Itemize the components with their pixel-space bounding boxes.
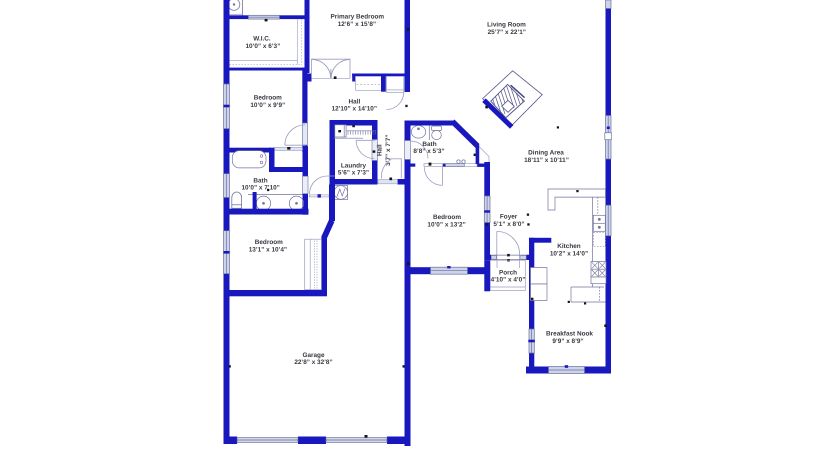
svg-text:10’0” x 9’9”: 10’0” x 9’9” — [250, 102, 285, 109]
svg-text:5’1” x 8’0”: 5’1” x 8’0” — [493, 221, 524, 228]
svg-text:Foyer: Foyer — [500, 213, 518, 220]
svg-text:12’10” x 14’10”: 12’10” x 14’10” — [332, 106, 377, 113]
svg-text:Garage: Garage — [302, 352, 324, 359]
svg-text:W.I.C.: W.I.C. — [253, 36, 271, 43]
svg-text:Hall: Hall — [349, 98, 361, 105]
svg-text:10’0” x 13’2”: 10’0” x 13’2” — [427, 222, 465, 229]
svg-text:Porch: Porch — [499, 270, 517, 277]
svg-text:Kitchen: Kitchen — [557, 243, 581, 250]
svg-text:Living Room: Living Room — [487, 22, 526, 29]
svg-text:18’11” x 10’11”: 18’11” x 10’11” — [524, 157, 569, 164]
svg-text:Bedroom: Bedroom — [255, 239, 283, 246]
svg-text:Dining Area: Dining Area — [528, 149, 564, 156]
svg-text:Bath: Bath — [253, 177, 267, 184]
svg-text:Bedroom: Bedroom — [254, 95, 282, 102]
svg-text:Bedroom: Bedroom — [433, 214, 461, 221]
svg-text:Laundry: Laundry — [341, 163, 367, 170]
svg-text:Breakfast Nook: Breakfast Nook — [546, 330, 593, 337]
svg-text:5’6” x 7’3”: 5’6” x 7’3” — [338, 170, 369, 177]
svg-text:13’1” x 10’4”: 13’1” x 10’4” — [249, 247, 287, 254]
svg-text:Hall: Hall — [376, 144, 383, 156]
svg-text:10’0” x 6’3”: 10’0” x 6’3” — [245, 43, 280, 50]
svg-text:10’0” x 7’10”: 10’0” x 7’10” — [242, 184, 280, 191]
svg-text:8’8” x 5’3”: 8’8” x 5’3” — [413, 148, 444, 155]
svg-text:9’9” x 8’9”: 9’9” x 8’9” — [552, 338, 583, 345]
svg-text:22’8” x 32’8”: 22’8” x 32’8” — [294, 359, 332, 366]
svg-text:Primary Bedroom: Primary Bedroom — [330, 14, 384, 21]
svg-text:25’7” x 22’1”: 25’7” x 22’1” — [488, 29, 526, 36]
svg-text:12’6” x 15’8”: 12’6” x 15’8” — [338, 21, 376, 28]
svg-text:10’2” x 14’0”: 10’2” x 14’0” — [550, 250, 588, 257]
svg-text:4’10” x 4’0”: 4’10” x 4’0” — [491, 277, 526, 284]
